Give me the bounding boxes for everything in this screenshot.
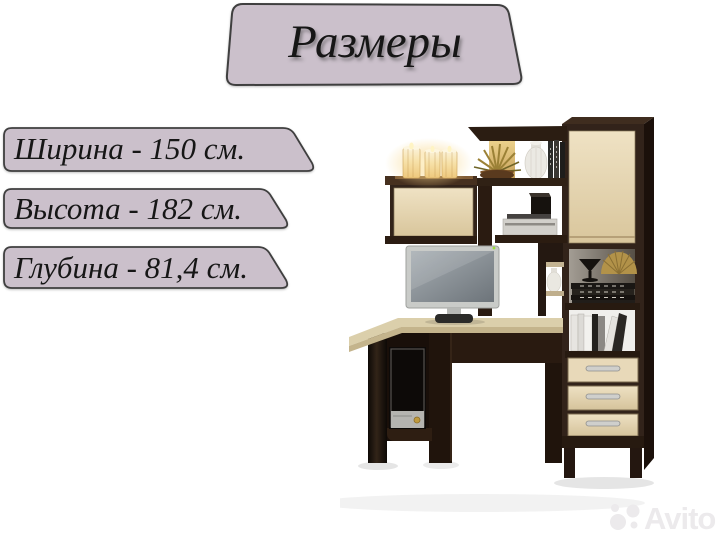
dimension-label-height: Высота - 182 см.: [0, 185, 300, 233]
books-top: [548, 140, 565, 178]
book-shelf: [569, 310, 635, 351]
dimension-height-text: Высота - 182 см.: [14, 191, 242, 227]
drawer-handle: [586, 421, 620, 426]
desk: [349, 318, 563, 463]
dimension-label-width: Ширина - 150 см.: [0, 124, 324, 176]
right-cabinet: [562, 117, 654, 478]
page-title: Размеры: [218, 15, 532, 69]
mini-vase: [547, 272, 561, 292]
title-banner: Размеры: [218, 0, 532, 92]
book-stack: [571, 283, 635, 304]
watermark-brand: Avito: [644, 501, 715, 537]
dimension-label-depth: Глубина - 81,4 см.: [0, 243, 300, 293]
cabinet-door: [569, 131, 635, 243]
dimension-depth-text: Глубина - 81,4 см.: [14, 250, 248, 286]
cabinet-leg: [630, 448, 642, 478]
cabinet-leg: [564, 448, 575, 478]
drawer-handle: [586, 394, 620, 399]
computer-tower: [389, 347, 426, 429]
power-button: [414, 417, 420, 423]
printer: [503, 214, 557, 235]
drawer-handle: [586, 366, 620, 371]
shelf-board: [477, 178, 567, 186]
candles: [385, 138, 473, 188]
screenshot-root: Размеры Ширина - 150 см. Высота - 182 см…: [0, 0, 720, 540]
candle: [403, 143, 420, 179]
desk-side-panel: [368, 333, 387, 463]
tower-shelf: [387, 428, 432, 441]
product-photo: [340, 95, 700, 515]
candle: [425, 146, 440, 178]
power-led: [493, 247, 496, 250]
avito-circles-icon: [606, 499, 644, 535]
shelf-board: [495, 235, 567, 243]
cabinet-door: [394, 188, 473, 236]
speaker: [529, 193, 551, 217]
mini-shelves: [538, 243, 564, 316]
drawers: [568, 358, 638, 436]
decor-shelf: [569, 249, 637, 304]
monitor-base: [435, 314, 473, 323]
candle: [442, 146, 457, 178]
watermark: Avito: [606, 499, 720, 537]
vase-decor: [525, 141, 547, 179]
dimension-width-text: Ширина - 150 см.: [14, 131, 245, 167]
